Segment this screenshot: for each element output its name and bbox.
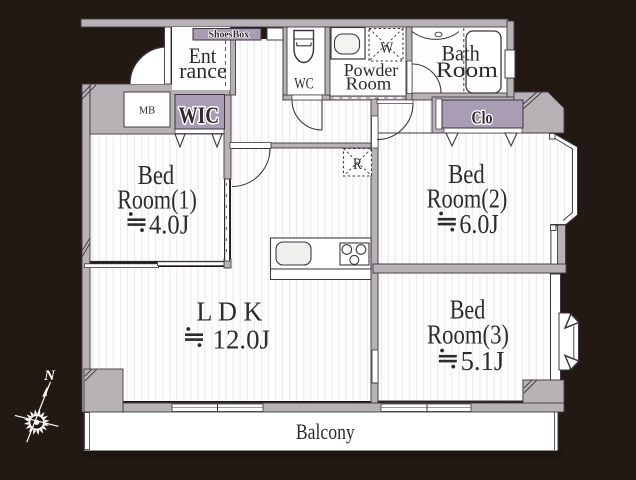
svg-text:4.0J: 4.0J [149,210,189,240]
svg-text:WC: WC [294,75,314,92]
svg-text:Room(3): Room(3) [427,320,509,350]
svg-text:R: R [353,156,362,173]
svg-text:6.0J: 6.0J [459,209,498,239]
svg-text:5.1J: 5.1J [461,346,505,376]
svg-text:rance: rance [179,58,227,83]
svg-text:ShoesBox: ShoesBox [209,29,250,40]
svg-text:Room: Room [346,73,392,93]
svg-text:Balcony: Balcony [296,419,355,444]
svg-text:MB: MB [139,106,155,117]
svg-text:L D K: L D K [196,296,262,326]
svg-text:12.0J: 12.0J [213,325,271,355]
svg-text:N: N [43,368,56,384]
svg-text:W: W [380,40,394,57]
svg-text:WIC: WIC [179,103,220,128]
svg-text:Clo: Clo [472,107,493,127]
svg-text:Room: Room [436,57,498,82]
